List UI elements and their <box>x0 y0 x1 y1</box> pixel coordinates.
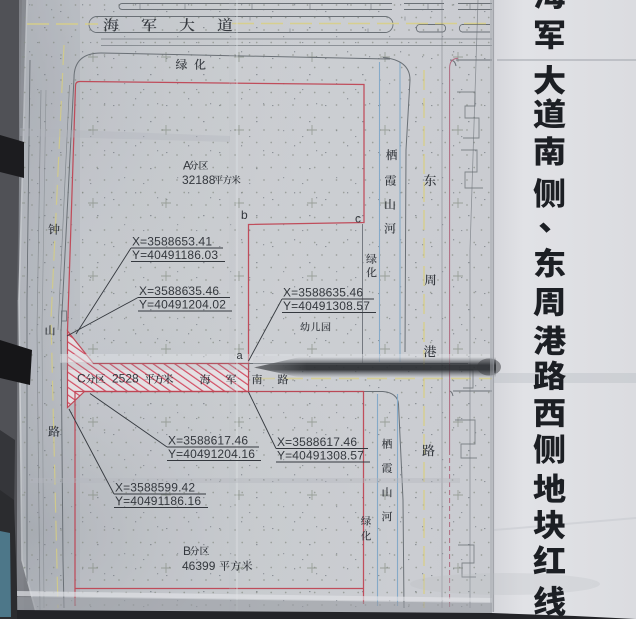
svg-text:2528: 2528 <box>112 372 139 386</box>
svg-text:a: a <box>237 350 244 362</box>
svg-text:Y=40491308.57: Y=40491308.57 <box>283 299 370 313</box>
svg-text:Y=40491186.16: Y=40491186.16 <box>115 494 201 508</box>
svg-text:X=3588653.41: X=3588653.41 <box>132 235 212 249</box>
svg-text:X=3588599.42: X=3588599.42 <box>115 481 195 495</box>
svg-text:X=3588635.46: X=3588635.46 <box>283 286 363 300</box>
svg-text:X=3588635.46: X=3588635.46 <box>139 284 219 298</box>
svg-text:A: A <box>183 159 191 173</box>
svg-text:X=3588617.46: X=3588617.46 <box>277 435 357 449</box>
svg-text:Y=40491186.03: Y=40491186.03 <box>132 248 218 262</box>
svg-text:C: C <box>77 372 86 386</box>
svg-text:46399: 46399 <box>182 559 216 573</box>
svg-text:c: c <box>355 212 361 226</box>
svg-text:Y=40491204.02: Y=40491204.02 <box>139 298 226 312</box>
svg-text:Y=40491204.16: Y=40491204.16 <box>168 447 255 461</box>
svg-text:B: B <box>183 544 191 558</box>
svg-text:X=3588617.46: X=3588617.46 <box>168 434 248 448</box>
svg-text:b: b <box>241 208 248 222</box>
svg-text:Y=40491308.57: Y=40491308.57 <box>277 449 364 463</box>
svg-text:32188: 32188 <box>182 173 216 187</box>
